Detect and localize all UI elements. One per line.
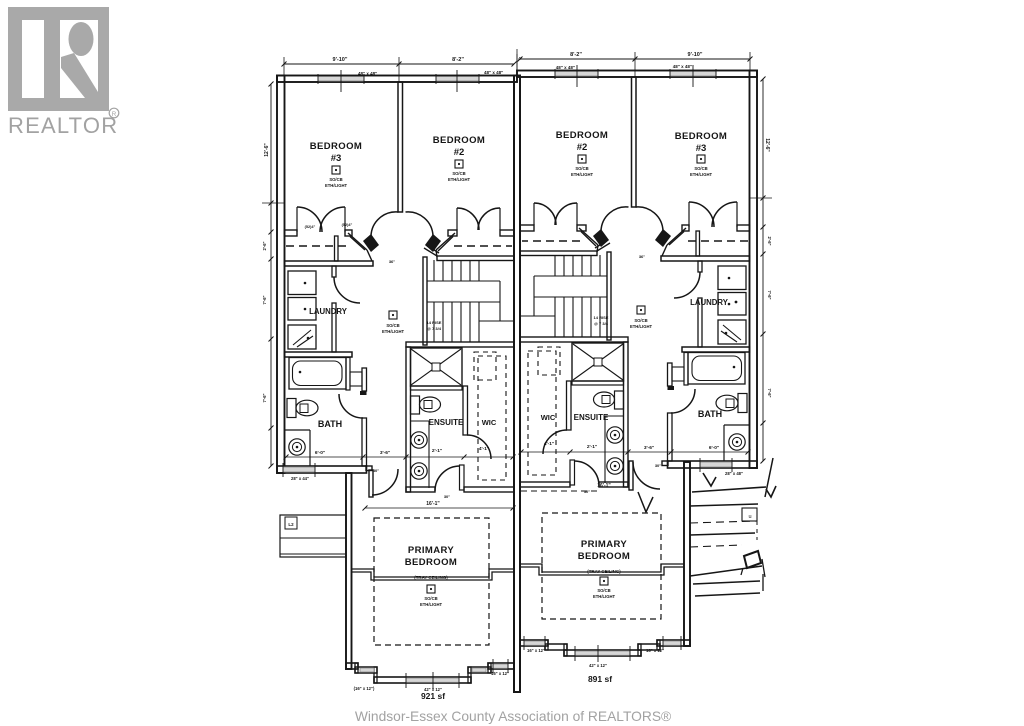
- svg-text:BEDROOM: BEDROOM: [578, 551, 630, 562]
- svg-text:48" x 48": 48" x 48": [358, 71, 377, 76]
- svg-text:(52)4": (52)4": [342, 223, 353, 227]
- svg-text:(16" x 12"): (16" x 12"): [354, 686, 375, 691]
- svg-text:(TRAY CEILING): (TRAY CEILING): [414, 575, 448, 580]
- svg-text:12'-6": 12'-6": [764, 138, 770, 152]
- svg-text:30": 30": [444, 494, 450, 499]
- svg-text:16" x 12": 16" x 12": [646, 648, 664, 653]
- svg-text:28" x 48": 28" x 48": [725, 471, 743, 476]
- svg-text:#3: #3: [331, 153, 342, 164]
- svg-text:16'-1": 16'-1": [597, 483, 611, 489]
- svg-text:16'-1": 16'-1": [426, 501, 440, 507]
- svg-text:SO/CB: SO/CB: [386, 323, 399, 328]
- svg-text:Windsor-Essex County Associati: Windsor-Essex County Association of REAL…: [355, 709, 671, 724]
- svg-text:2'-1": 2'-1": [587, 444, 597, 450]
- svg-text:16" x 12": 16" x 12": [527, 648, 545, 653]
- svg-text:7'-6": 7'-6": [262, 295, 267, 304]
- svg-text:SO/CB: SO/CB: [597, 588, 610, 593]
- svg-text:3'-6": 3'-6": [644, 445, 654, 451]
- svg-text:14 RISE: 14 RISE: [594, 315, 609, 320]
- svg-text:#3: #3: [696, 143, 707, 154]
- svg-text:BEDROOM: BEDROOM: [310, 141, 362, 152]
- svg-text:16" x 12": 16" x 12": [491, 671, 509, 676]
- svg-text:2'-6": 2'-6": [767, 236, 772, 245]
- svg-text:4'-1": 4'-1": [479, 446, 489, 452]
- svg-text:ETH/LIGHT: ETH/LIGHT: [630, 324, 653, 329]
- svg-text:28" x 44": 28" x 44": [291, 476, 309, 481]
- svg-text:42" x 12": 42" x 12": [589, 663, 607, 668]
- svg-text:ETH/LIGHT: ETH/LIGHT: [593, 594, 616, 599]
- svg-text:9'-10": 9'-10": [688, 52, 703, 58]
- svg-text:ETH/LIGHT: ETH/LIGHT: [690, 172, 713, 177]
- svg-text:36": 36": [639, 254, 645, 259]
- svg-text:R: R: [112, 111, 117, 118]
- svg-text:(TRAY CEILING): (TRAY CEILING): [587, 569, 621, 574]
- svg-text:PRIMARY: PRIMARY: [581, 539, 628, 550]
- svg-text:48" x 48": 48" x 48": [556, 65, 575, 70]
- svg-text:48" x 48": 48" x 48": [673, 64, 692, 69]
- svg-text:LAUNDRY: LAUNDRY: [309, 307, 348, 316]
- svg-text:30": 30": [584, 489, 590, 494]
- svg-text:7'-6": 7'-6": [767, 388, 772, 397]
- svg-text:WIC: WIC: [482, 418, 497, 427]
- svg-text:SO/CB: SO/CB: [575, 166, 588, 171]
- svg-text:SO/CB: SO/CB: [452, 171, 465, 176]
- svg-text:2'-1": 2'-1": [432, 448, 442, 454]
- svg-text:2'-6": 2'-6": [262, 241, 267, 250]
- svg-text:SO/CB: SO/CB: [634, 318, 647, 323]
- svg-text:BATH: BATH: [698, 409, 722, 419]
- svg-text:(52)4": (52)4": [305, 225, 316, 229]
- svg-text:30": 30": [373, 468, 379, 473]
- svg-text:REALTOR: REALTOR: [8, 113, 118, 138]
- svg-text:8'-2": 8'-2": [452, 57, 464, 63]
- svg-text:BEDROOM: BEDROOM: [433, 135, 485, 146]
- svg-text:#2: #2: [454, 147, 465, 158]
- svg-text:7'-6": 7'-6": [262, 393, 267, 402]
- svg-text:14 RISE: 14 RISE: [427, 320, 442, 325]
- svg-text:ENSUITE: ENSUITE: [574, 413, 609, 422]
- svg-text:u: u: [748, 514, 751, 520]
- svg-text:SO/CB: SO/CB: [694, 166, 707, 171]
- svg-text:ETH/LIGHT: ETH/LIGHT: [420, 602, 443, 607]
- svg-text:SO/CB: SO/CB: [424, 596, 437, 601]
- svg-text:L2: L2: [288, 522, 294, 527]
- svg-text:30": 30": [655, 463, 661, 468]
- svg-text:ETH/LIGHT: ETH/LIGHT: [382, 329, 405, 334]
- svg-text:3'-6": 3'-6": [380, 450, 390, 456]
- svg-text:@ 7 3/4: @ 7 3/4: [594, 321, 609, 326]
- svg-text:BATH: BATH: [318, 419, 342, 429]
- svg-text:SO/CB: SO/CB: [329, 177, 342, 182]
- svg-text:36": 36": [389, 259, 395, 264]
- svg-text:12'-6": 12'-6": [264, 143, 270, 157]
- svg-text:BEDROOM: BEDROOM: [405, 557, 457, 568]
- svg-text:BEDROOM: BEDROOM: [675, 131, 727, 142]
- svg-text:BEDROOM: BEDROOM: [556, 130, 608, 141]
- svg-text:#2: #2: [577, 142, 588, 153]
- svg-text:9'-10": 9'-10": [333, 57, 348, 63]
- svg-text:921 sf: 921 sf: [421, 691, 445, 701]
- svg-text:@ 7 3/4: @ 7 3/4: [427, 326, 442, 331]
- svg-text:6'-0": 6'-0": [709, 445, 719, 451]
- svg-text:48" x 48": 48" x 48": [484, 70, 503, 75]
- svg-text:LAUNDRY: LAUNDRY: [690, 298, 729, 307]
- svg-text:WIC: WIC: [541, 413, 556, 422]
- svg-text:6'-0": 6'-0": [315, 450, 325, 456]
- svg-text:ETH/LIGHT: ETH/LIGHT: [325, 183, 348, 188]
- svg-text:8'-2": 8'-2": [570, 52, 582, 58]
- svg-text:ETH/LIGHT: ETH/LIGHT: [448, 177, 471, 182]
- svg-text:PRIMARY: PRIMARY: [408, 545, 455, 556]
- svg-text:7'-6": 7'-6": [767, 290, 772, 299]
- svg-text:ENSUITE: ENSUITE: [429, 418, 464, 427]
- svg-text:4': 4': [518, 56, 522, 61]
- svg-text:891 sf: 891 sf: [588, 674, 612, 684]
- svg-text:4'-1": 4'-1": [544, 441, 554, 447]
- svg-text:ETH/LIGHT: ETH/LIGHT: [571, 172, 594, 177]
